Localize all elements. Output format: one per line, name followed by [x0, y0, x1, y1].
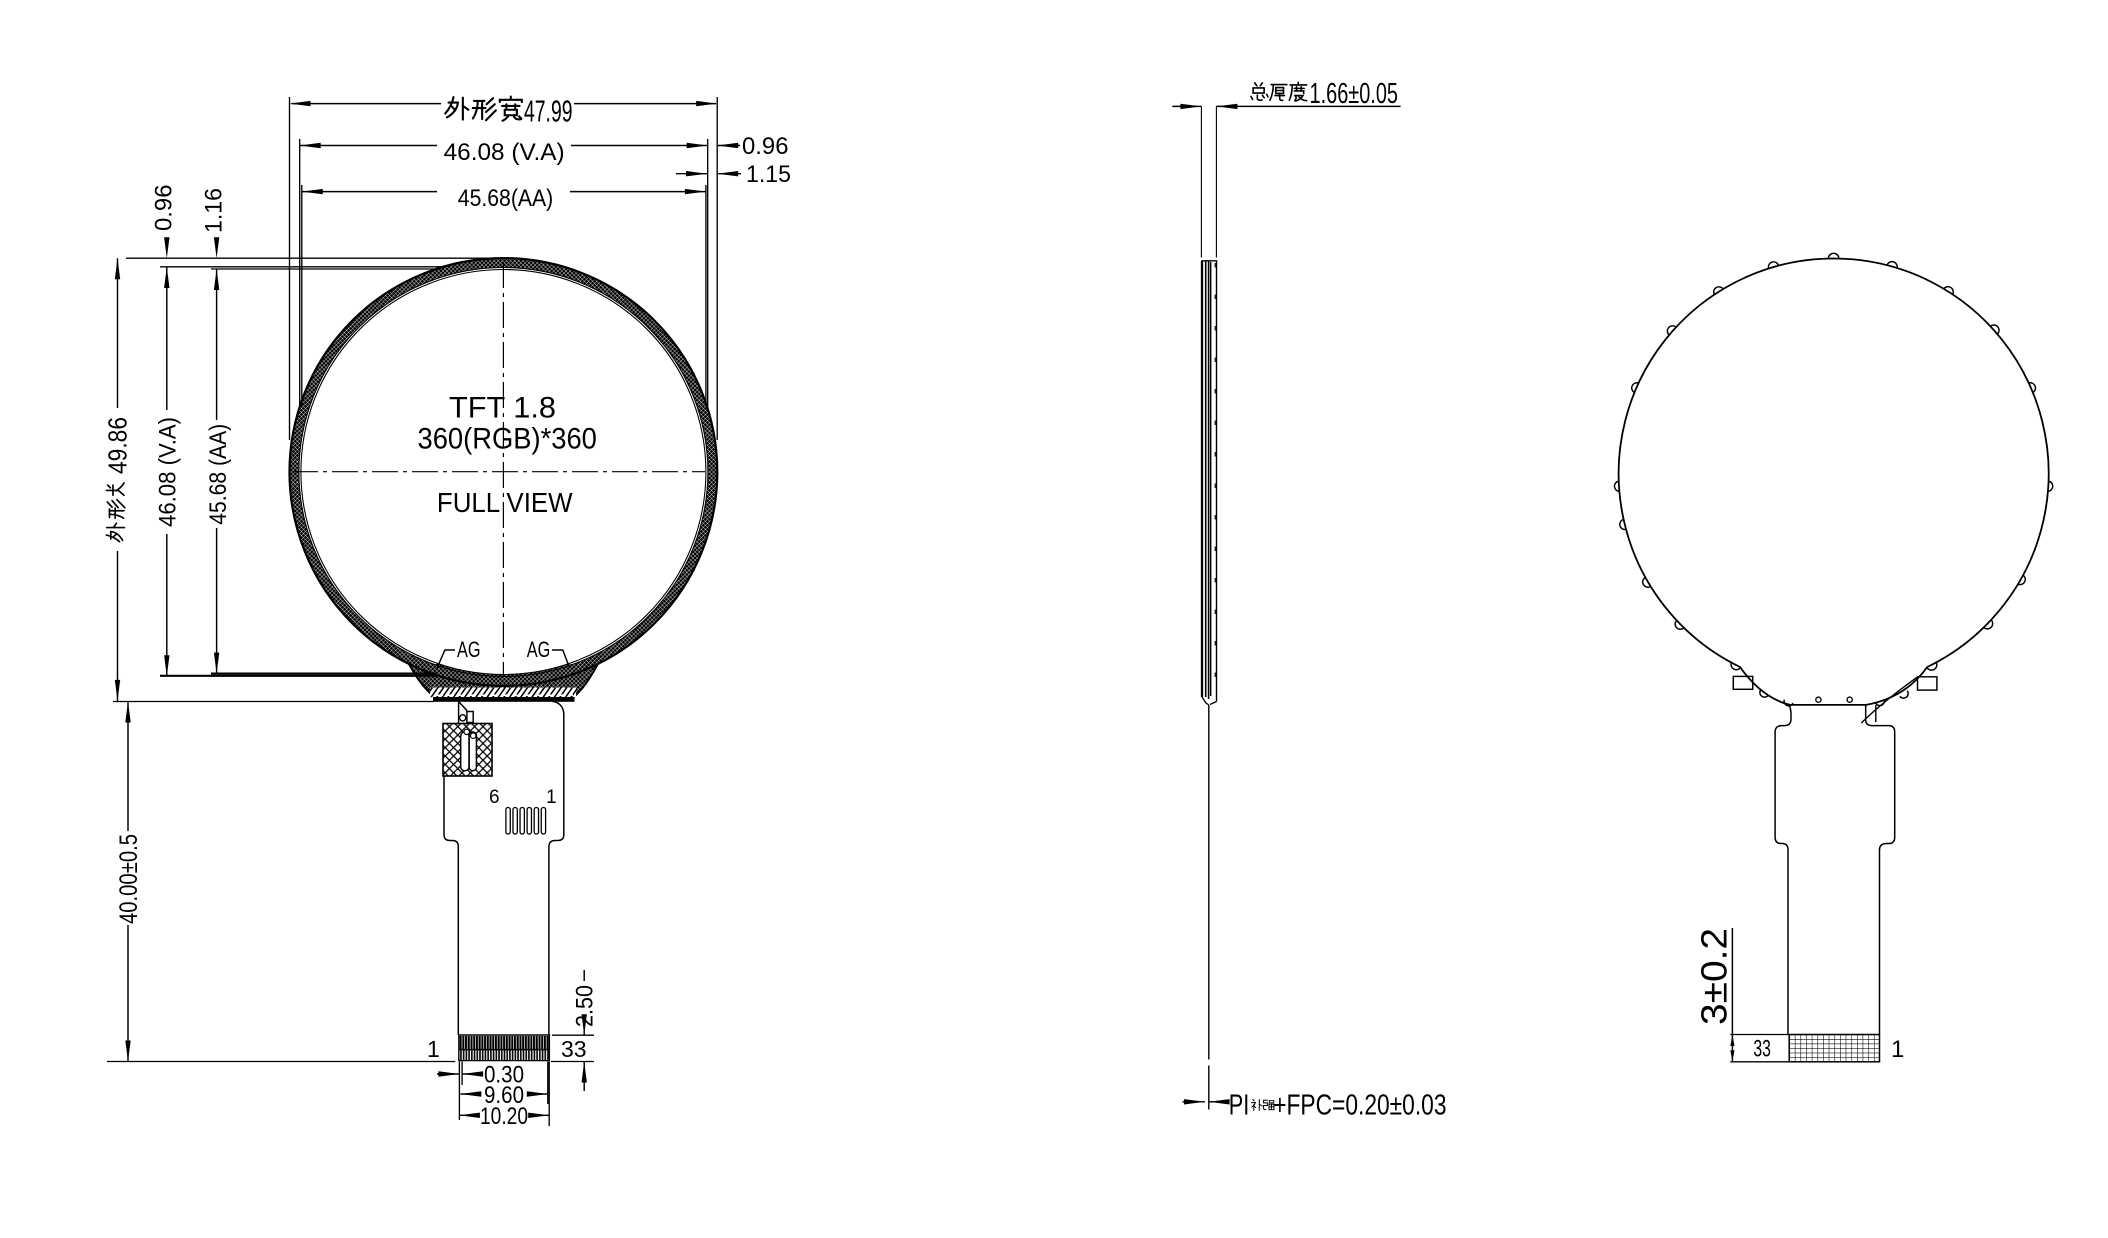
svg-text:1: 1 — [1891, 1036, 1904, 1063]
svg-text:33: 33 — [1753, 1036, 1771, 1063]
svg-text:6: 6 — [489, 787, 500, 808]
svg-text:1.15: 1.15 — [746, 161, 791, 188]
svg-text:0.96: 0.96 — [151, 185, 178, 232]
svg-text:PI: PI — [1229, 1090, 1250, 1122]
svg-text:33: 33 — [561, 1036, 587, 1062]
svg-text:3±0.2: 3±0.2 — [1694, 928, 1735, 1025]
svg-text:46.08 (V.A): 46.08 (V.A) — [154, 417, 181, 527]
svg-text:47.99: 47.99 — [524, 94, 573, 129]
svg-text:40.00±0.5: 40.00±0.5 — [115, 834, 143, 924]
svg-text:46.08 (V.A): 46.08 (V.A) — [444, 139, 565, 166]
svg-text:49.86: 49.86 — [103, 417, 133, 474]
svg-text:+FPC=0.20±0.03: +FPC=0.20±0.03 — [1273, 1090, 1446, 1122]
svg-text:45.68 (AA): 45.68 (AA) — [205, 424, 232, 525]
svg-text:AG: AG — [457, 637, 481, 662]
svg-text:AG: AG — [527, 637, 551, 662]
svg-text:10.20: 10.20 — [480, 1103, 528, 1130]
svg-text:45.68(AA): 45.68(AA) — [458, 185, 553, 212]
svg-text:TFT 1.8: TFT 1.8 — [449, 392, 556, 425]
svg-text:1.66±0.05: 1.66±0.05 — [1310, 78, 1399, 110]
svg-text:1: 1 — [427, 1036, 440, 1062]
svg-text:360(RGB)*360: 360(RGB)*360 — [418, 423, 597, 456]
svg-text:2.50: 2.50 — [572, 985, 599, 1027]
svg-text:0.96: 0.96 — [742, 133, 789, 160]
svg-text:1: 1 — [546, 787, 557, 808]
svg-text:1.16: 1.16 — [200, 188, 227, 233]
svg-text:FULL VIEW: FULL VIEW — [437, 487, 573, 518]
